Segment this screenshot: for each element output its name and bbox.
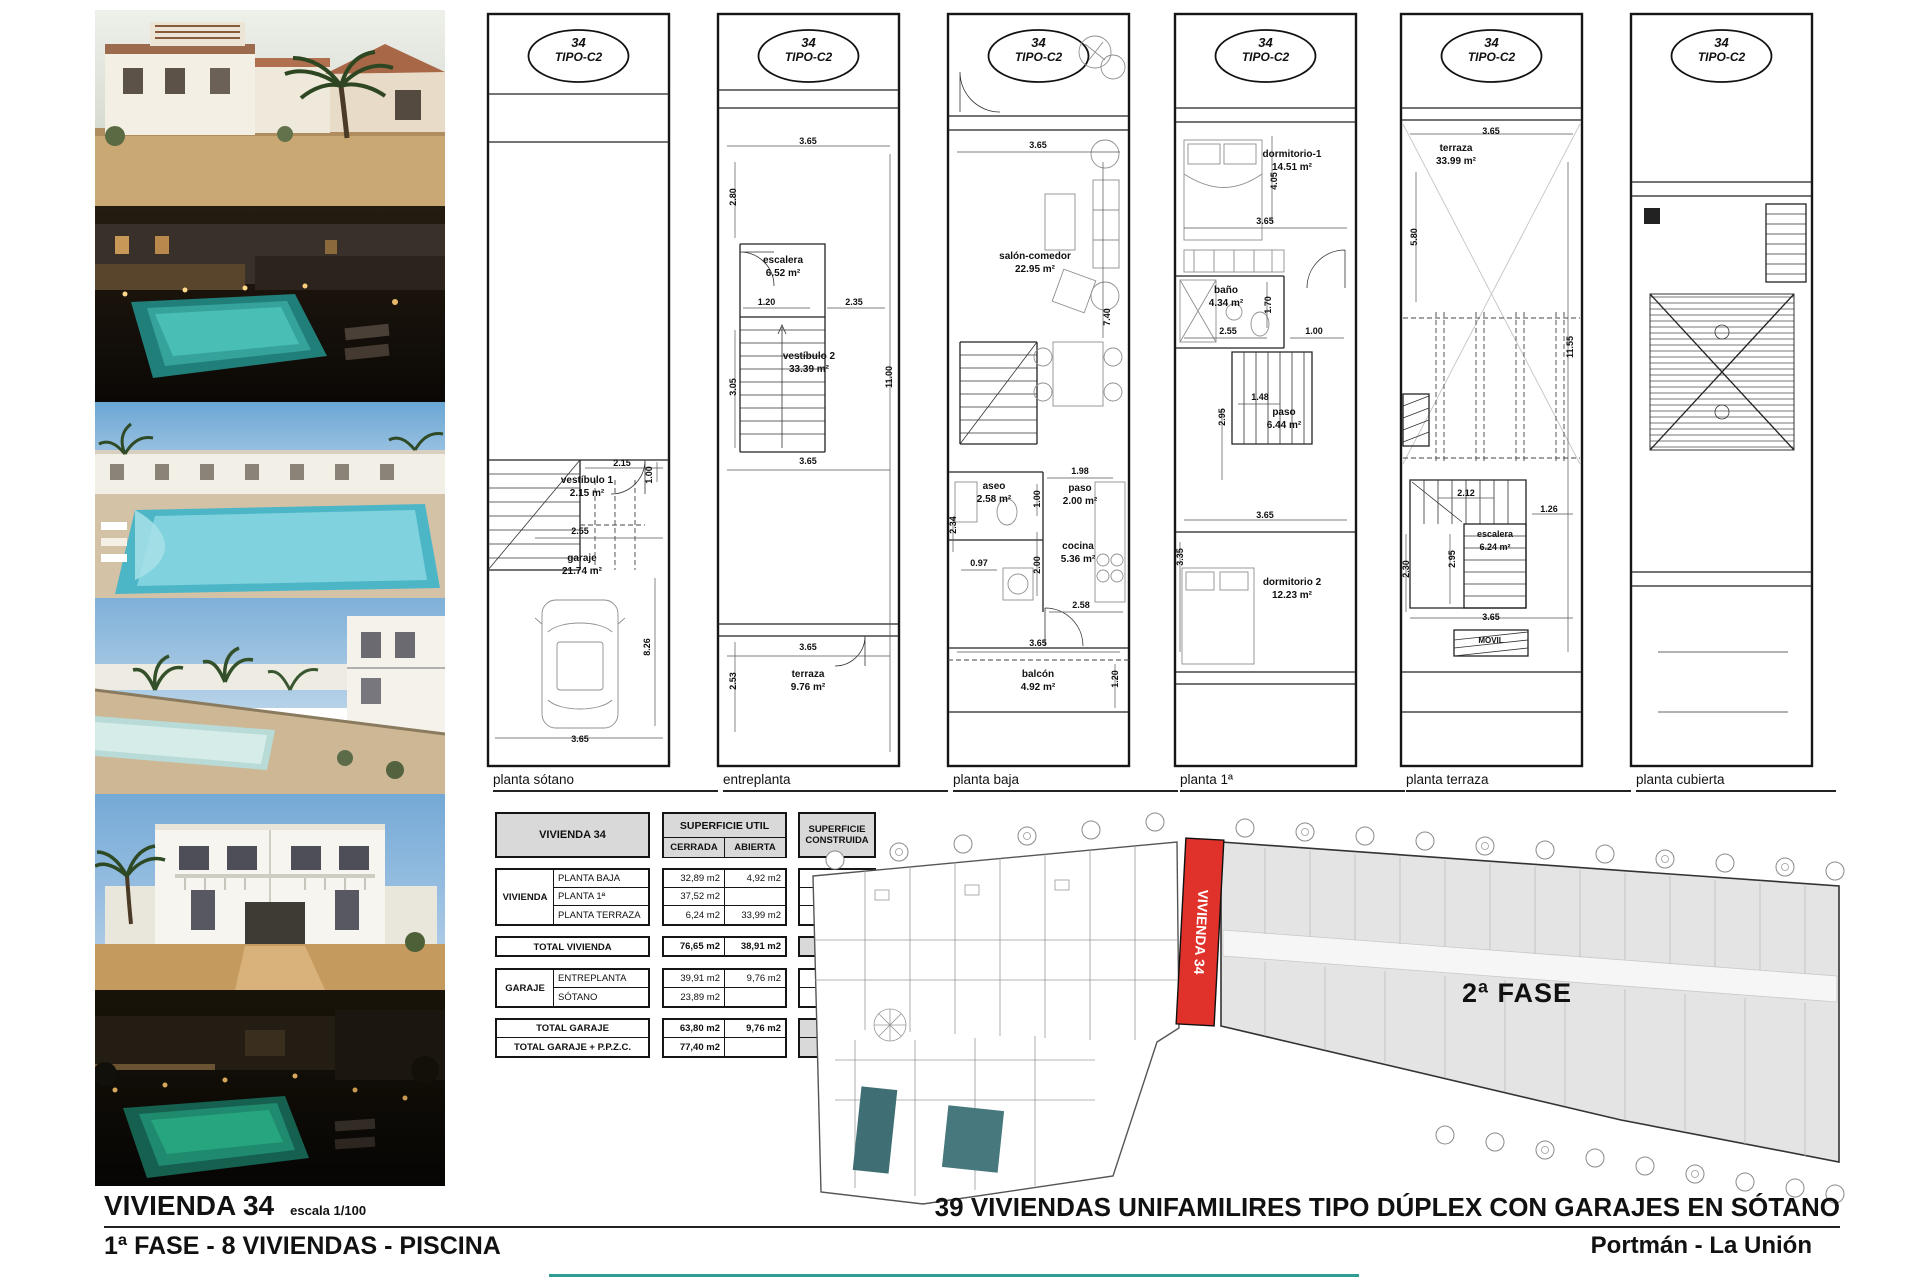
plan-sheet: 34 TIPO-C2 2.15 vestíbulo 1 2.15 m² 1.00… bbox=[0, 0, 1920, 1280]
row-planta-1: PLANTA 1ª bbox=[554, 888, 648, 906]
value-cell: 32,89 m2 bbox=[664, 870, 725, 887]
floorplan-planta-primera: 34 TIPO-C2 dormitorio-1 14.51 m² 4.05 3.… bbox=[1172, 12, 1359, 772]
type-badge: 34 TIPO-C2 bbox=[945, 36, 1132, 64]
dim-label: 3.65 bbox=[1446, 126, 1536, 136]
render-photo-street-day bbox=[95, 10, 445, 206]
dim-label: 1.00 bbox=[644, 455, 654, 495]
dim-label: 1.00 bbox=[1032, 479, 1042, 519]
value-cell: 33,99 m2 bbox=[725, 906, 785, 924]
floorplan-planta-terraza: 34 TIPO-C2 3.65 terraza 33.99 m² 5.80 11… bbox=[1398, 12, 1585, 772]
type-badge: 34 TIPO-C2 bbox=[715, 36, 902, 64]
footer-right-subtitle: Portmán - La Unión bbox=[890, 1232, 1812, 1260]
caption-planta-cubierta: planta cubierta bbox=[1636, 772, 1836, 792]
dim-label: 2.12 bbox=[1440, 488, 1492, 498]
dim-label: 2.80 bbox=[728, 177, 738, 217]
value-cell: 4,92 m2 bbox=[725, 870, 785, 887]
dim-label: 11.55 bbox=[1565, 327, 1575, 367]
phase-2-label: 2ª FASE bbox=[1462, 978, 1572, 1009]
dim-label: 1.26 bbox=[1524, 504, 1574, 514]
dim-label: 5.80 bbox=[1409, 217, 1419, 257]
render-photo-pool-night-1 bbox=[95, 206, 445, 402]
caption-planta-terraza: planta terraza bbox=[1406, 772, 1631, 792]
render-photo-terrace-view bbox=[95, 598, 445, 794]
table-total-garaje-labels: TOTAL GARAJE TOTAL GARAJE + P.P.Z.C. bbox=[495, 1018, 650, 1058]
room-label-terraza: terraza 9.76 m² bbox=[765, 668, 851, 694]
dim-label: 1.98 bbox=[1047, 466, 1113, 476]
footer-accent-line bbox=[549, 1274, 1359, 1277]
table-garaje-util-values: 39,91 m29,76 m2 23,89 m2 bbox=[662, 968, 787, 1008]
group-vivienda: VIVIENDA bbox=[497, 870, 554, 924]
dim-label: 2.95 bbox=[1447, 539, 1457, 579]
dim-label: 3.65 bbox=[763, 456, 853, 466]
dim-label: 3.05 bbox=[728, 367, 738, 407]
row-planta-terraza: PLANTA TERRAZA bbox=[554, 906, 648, 924]
dim-label: 2.55 bbox=[540, 526, 620, 536]
table-title-cell: VIVIENDA 34 bbox=[495, 812, 650, 858]
row-planta-baja: PLANTA BAJA bbox=[554, 870, 648, 888]
room-label-vestibulo1: vestíbulo 1 2.15 m² bbox=[540, 474, 634, 500]
dim-label: 2.58 bbox=[1049, 600, 1113, 610]
col-superficie-util: SUPERFICIE UTIL bbox=[664, 814, 785, 838]
floorplan-planta-cubierta: 34 TIPO-C2 bbox=[1628, 12, 1815, 772]
dim-label: 7.40 bbox=[1102, 297, 1112, 337]
table-vivienda-util-values: 32,89 m24,92 m2 37,52 m2 6,24 m233,99 m2 bbox=[662, 868, 787, 926]
room-label-escalera: escalera 6.52 m² bbox=[745, 254, 821, 280]
value-cell: 37,52 m2 bbox=[664, 888, 725, 905]
footer-divider bbox=[104, 1226, 1840, 1228]
room-label-cocina: cocina 5.36 m² bbox=[1045, 540, 1111, 566]
dim-label: 1.00 bbox=[1286, 326, 1342, 336]
dim-label: 1.20 bbox=[739, 297, 794, 307]
type-badge: 34 TIPO-C2 bbox=[1172, 36, 1359, 64]
dim-label: 3.65 bbox=[535, 734, 625, 744]
room-label-vestibulo2: vestíbulo 2 33.39 m² bbox=[759, 350, 859, 376]
room-label-terraza: terraza 33.99 m² bbox=[1414, 142, 1498, 168]
dim-label: 8.26 bbox=[642, 627, 652, 667]
dim-label: 3.65 bbox=[763, 136, 853, 146]
floorplan-entreplanta: 34 TIPO-C2 3.65 2.80 escalera 6.52 m² 1.… bbox=[715, 12, 902, 772]
room-label-balcon: balcón 4.92 m² bbox=[995, 668, 1081, 694]
table-garaje-rows-labels: GARAJE ENTREPLANTA SÓTANO bbox=[495, 968, 650, 1008]
floorplan-planta-baja: 34 TIPO-C2 3.65 salón-comedor 22.95 m² 7… bbox=[945, 12, 1132, 772]
siteplan: VIVIENDA 34 bbox=[795, 790, 1845, 1220]
dim-label: 4.05 bbox=[1269, 161, 1279, 201]
type-badge: 34 TIPO-C2 bbox=[1398, 36, 1585, 64]
footer-left-subtitle: 1ª FASE - 8 VIVIENDAS - PISCINA bbox=[104, 1232, 501, 1261]
caption-planta-primera: planta 1ª bbox=[1180, 772, 1405, 792]
caption-planta-baja: planta baja bbox=[953, 772, 1178, 792]
dim-label: 3.65 bbox=[993, 140, 1083, 150]
dim-label: 2.35 bbox=[823, 297, 885, 307]
dim-label: 3.65 bbox=[1220, 216, 1310, 226]
badge-type: TIPO-C2 bbox=[555, 50, 602, 64]
value-cell bbox=[725, 888, 785, 905]
room-label-dormitorio2: dormitorio 2 12.23 m² bbox=[1234, 576, 1350, 602]
room-label-aseo: aseo 2.58 m² bbox=[957, 480, 1031, 506]
dim-label: 2.95 bbox=[1217, 397, 1227, 437]
dim-label: 11.00 bbox=[884, 357, 894, 397]
footer-right-title: 39 VIVIENDAS UNIFAMILIRES TIPO DÚPLEX CO… bbox=[890, 1192, 1840, 1223]
render-photo-pool-day bbox=[95, 402, 445, 598]
dim-label: 2.30 bbox=[1401, 549, 1411, 589]
table-header-util: SUPERFICIE UTIL CERRADA ABIERTA bbox=[662, 812, 787, 858]
render-photo-pool-night-2 bbox=[95, 990, 445, 1186]
col-cerrada: CERRADA bbox=[664, 838, 725, 857]
row-sotano: SÓTANO bbox=[554, 988, 648, 1006]
dim-label: 3.35 bbox=[1175, 537, 1185, 577]
movil-hatch-label: MOVIL bbox=[1454, 636, 1528, 645]
floorplan-planta-sotano: 34 TIPO-C2 2.15 vestíbulo 1 2.15 m² 1.00… bbox=[485, 12, 672, 772]
room-label-paso: paso 6.44 m² bbox=[1248, 406, 1320, 432]
dim-label: 0.97 bbox=[957, 558, 1001, 568]
table-vivienda-rows-labels: VIVIENDA PLANTA BAJA PLANTA 1ª PLANTA TE… bbox=[495, 868, 650, 926]
dim-label: 2.55 bbox=[1196, 326, 1260, 336]
room-label-garaje: garaje 21.74 m² bbox=[535, 552, 629, 578]
room-label-dormitorio1: dormitorio-1 14.51 m² bbox=[1234, 148, 1350, 174]
render-photo-facade-day bbox=[95, 794, 445, 990]
table-total-vivienda-label: TOTAL VIVIENDA bbox=[495, 936, 650, 957]
room-label-escalera: escalera 6.24 m² bbox=[1464, 528, 1526, 554]
dim-label: 2.34 bbox=[948, 505, 958, 545]
row-entreplanta: ENTREPLANTA bbox=[554, 970, 648, 988]
table-total-garaje-util: 63,80 m29,76 m2 77,40 m2 bbox=[662, 1018, 787, 1058]
footer-left-title: VIVIENDA 34escala 1/100 bbox=[104, 1190, 366, 1222]
value-cell: 6,24 m2 bbox=[664, 906, 725, 924]
dim-label: 1.48 bbox=[1232, 392, 1288, 402]
type-badge: 34 TIPO-C2 bbox=[485, 36, 672, 64]
dim-label: 3.65 bbox=[993, 638, 1083, 648]
dim-label: 1.70 bbox=[1263, 285, 1273, 325]
table-total-vivienda-util: 76,65 m238,91 m2 bbox=[662, 936, 787, 957]
room-label-salon-comedor: salón-comedor 22.95 m² bbox=[980, 250, 1090, 276]
dim-label: 3.65 bbox=[763, 642, 853, 652]
badge-number: 34 bbox=[571, 36, 585, 50]
type-badge: 34 TIPO-C2 bbox=[1628, 36, 1815, 64]
dim-label: 3.65 bbox=[1446, 612, 1536, 622]
caption-entreplanta: entreplanta bbox=[723, 772, 948, 792]
dim-label: 1.20 bbox=[1110, 659, 1120, 699]
room-label-paso: paso 2.00 m² bbox=[1047, 482, 1113, 508]
dim-label: 2.53 bbox=[728, 661, 738, 701]
scale-note: escala 1/100 bbox=[290, 1203, 366, 1218]
col-abierta: ABIERTA bbox=[725, 838, 785, 857]
group-garaje: GARAJE bbox=[497, 970, 554, 1006]
dim-label: 2.00 bbox=[1032, 545, 1042, 585]
dim-label: 3.65 bbox=[1220, 510, 1310, 520]
caption-planta-sotano: planta sótano bbox=[493, 772, 718, 792]
room-label-bano: baño 4.34 m² bbox=[1190, 284, 1262, 310]
